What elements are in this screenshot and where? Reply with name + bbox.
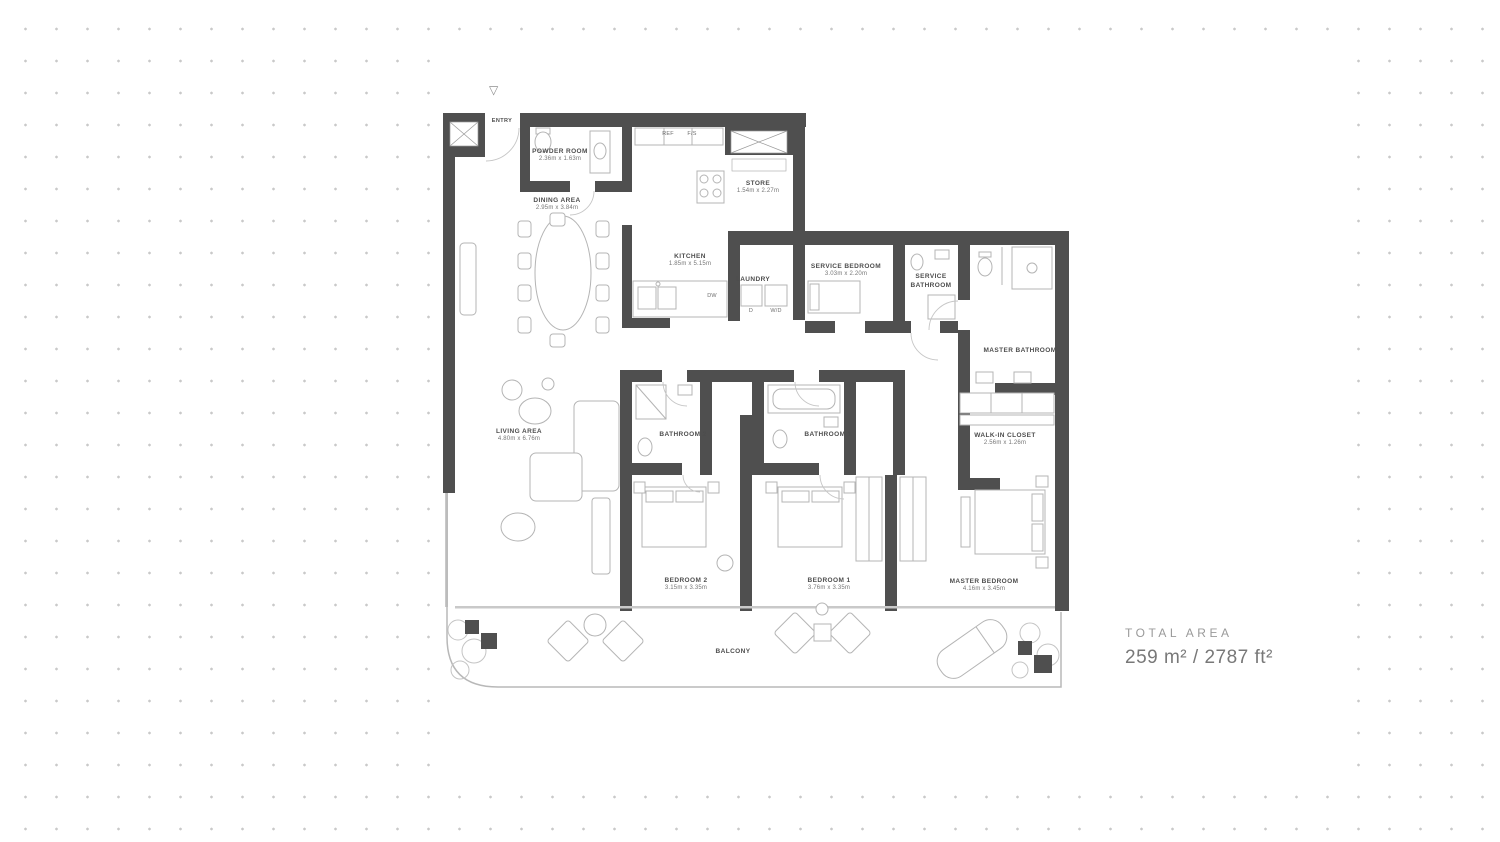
floor-plan-drawing <box>440 85 1072 695</box>
appliance-label-d: D <box>749 308 753 314</box>
room-label-living-area: LIVING AREA4.80m x 6.76m <box>496 428 542 442</box>
appliance-label-ref: REF <box>662 131 674 137</box>
room-label-service-bathroom: SERVICE BATHROOM <box>908 273 954 291</box>
room-label-kitchen: KITCHEN1.85m x 5.15m <box>669 253 711 267</box>
room-label-master-bathroom: MASTER BATHROOM <box>983 347 1056 354</box>
sink-icon <box>638 287 656 309</box>
bedroom2-furniture <box>634 482 733 571</box>
lounge-chair <box>547 620 589 662</box>
sink-icon <box>1014 372 1031 383</box>
living-room-furniture <box>501 378 619 574</box>
room-label-bedroom1: BEDROOM 13.76m x 3.35m <box>808 577 851 591</box>
appliance-label-fs: F/S <box>687 131 696 137</box>
toilet-icon <box>638 438 652 456</box>
total-area-value: 259 m² / 2787 ft² <box>1125 647 1273 669</box>
room-label-bedroom2: BEDROOM 23.15m x 3.35m <box>665 577 708 591</box>
sideboard <box>592 498 610 574</box>
total-area-label: TOTAL AREA <box>1125 626 1273 640</box>
room-label-bathroom2: BATHROOM 2 <box>659 431 706 438</box>
room-label-store: STORE1.54m x 2.27m <box>737 180 779 194</box>
room-label-walkin-closet: WALK-IN CLOSET2.56m x 1.26m <box>974 432 1036 446</box>
room-label-service-bedroom: SERVICE BEDROOM3.03m x 2.20m <box>811 263 881 277</box>
armchair <box>519 398 551 424</box>
bench <box>961 497 970 547</box>
room-label-master-bedroom: MASTER BEDROOM4.16m x 3.45m <box>950 578 1019 592</box>
room-label-entry: ENTRY <box>492 118 512 124</box>
sink-icon <box>824 417 838 427</box>
console-table <box>460 243 476 315</box>
balcony-furniture <box>448 603 1059 684</box>
kitchen-fixtures <box>633 128 727 317</box>
floor-plan: ▽ <box>440 85 1072 695</box>
walkin-closet-wardrobes <box>960 393 1054 425</box>
master-bathroom-fixtures <box>976 247 1052 383</box>
toilet-icon <box>978 258 992 276</box>
entry-marker-icon: ▽ <box>489 83 498 97</box>
bathroom2-fixtures <box>636 385 692 456</box>
total-area-block: TOTAL AREA 259 m² / 2787 ft² <box>1125 626 1273 669</box>
sink-icon <box>976 372 993 383</box>
room-label-dining-area: DINING AREA2.95m x 3.84m <box>533 197 580 211</box>
laundry-fixtures <box>741 285 787 306</box>
room-label-powder-room: POWDER ROOM2.36m x 1.63m <box>532 148 588 162</box>
lounge-chair <box>774 612 816 654</box>
sink-icon <box>678 385 692 395</box>
service-bedroom-furniture <box>808 281 860 313</box>
appliance-label-wd: W/D <box>770 308 781 314</box>
side-table <box>814 624 831 641</box>
appliance-label-dw: DW <box>707 293 717 299</box>
toilet-icon <box>773 430 787 448</box>
bedroom1-furniture <box>766 477 882 561</box>
coffee-table <box>502 380 522 400</box>
room-label-balcony: BALCONY <box>716 648 751 655</box>
lounge-chair <box>829 612 871 654</box>
dining-table-and-chairs <box>460 213 609 347</box>
bathroom1-fixtures <box>768 385 840 448</box>
armchair <box>501 513 535 541</box>
sun-lounger <box>932 614 1013 684</box>
round-table <box>584 614 606 636</box>
page: { "icons": { "entry_marker": "▽" }, "pla… <box>0 0 1500 842</box>
room-label-bathroom1: BATHROOM 1 <box>804 431 851 438</box>
room-label-laundry: LAUNDRY <box>736 276 770 283</box>
lounge-chair <box>602 620 644 662</box>
